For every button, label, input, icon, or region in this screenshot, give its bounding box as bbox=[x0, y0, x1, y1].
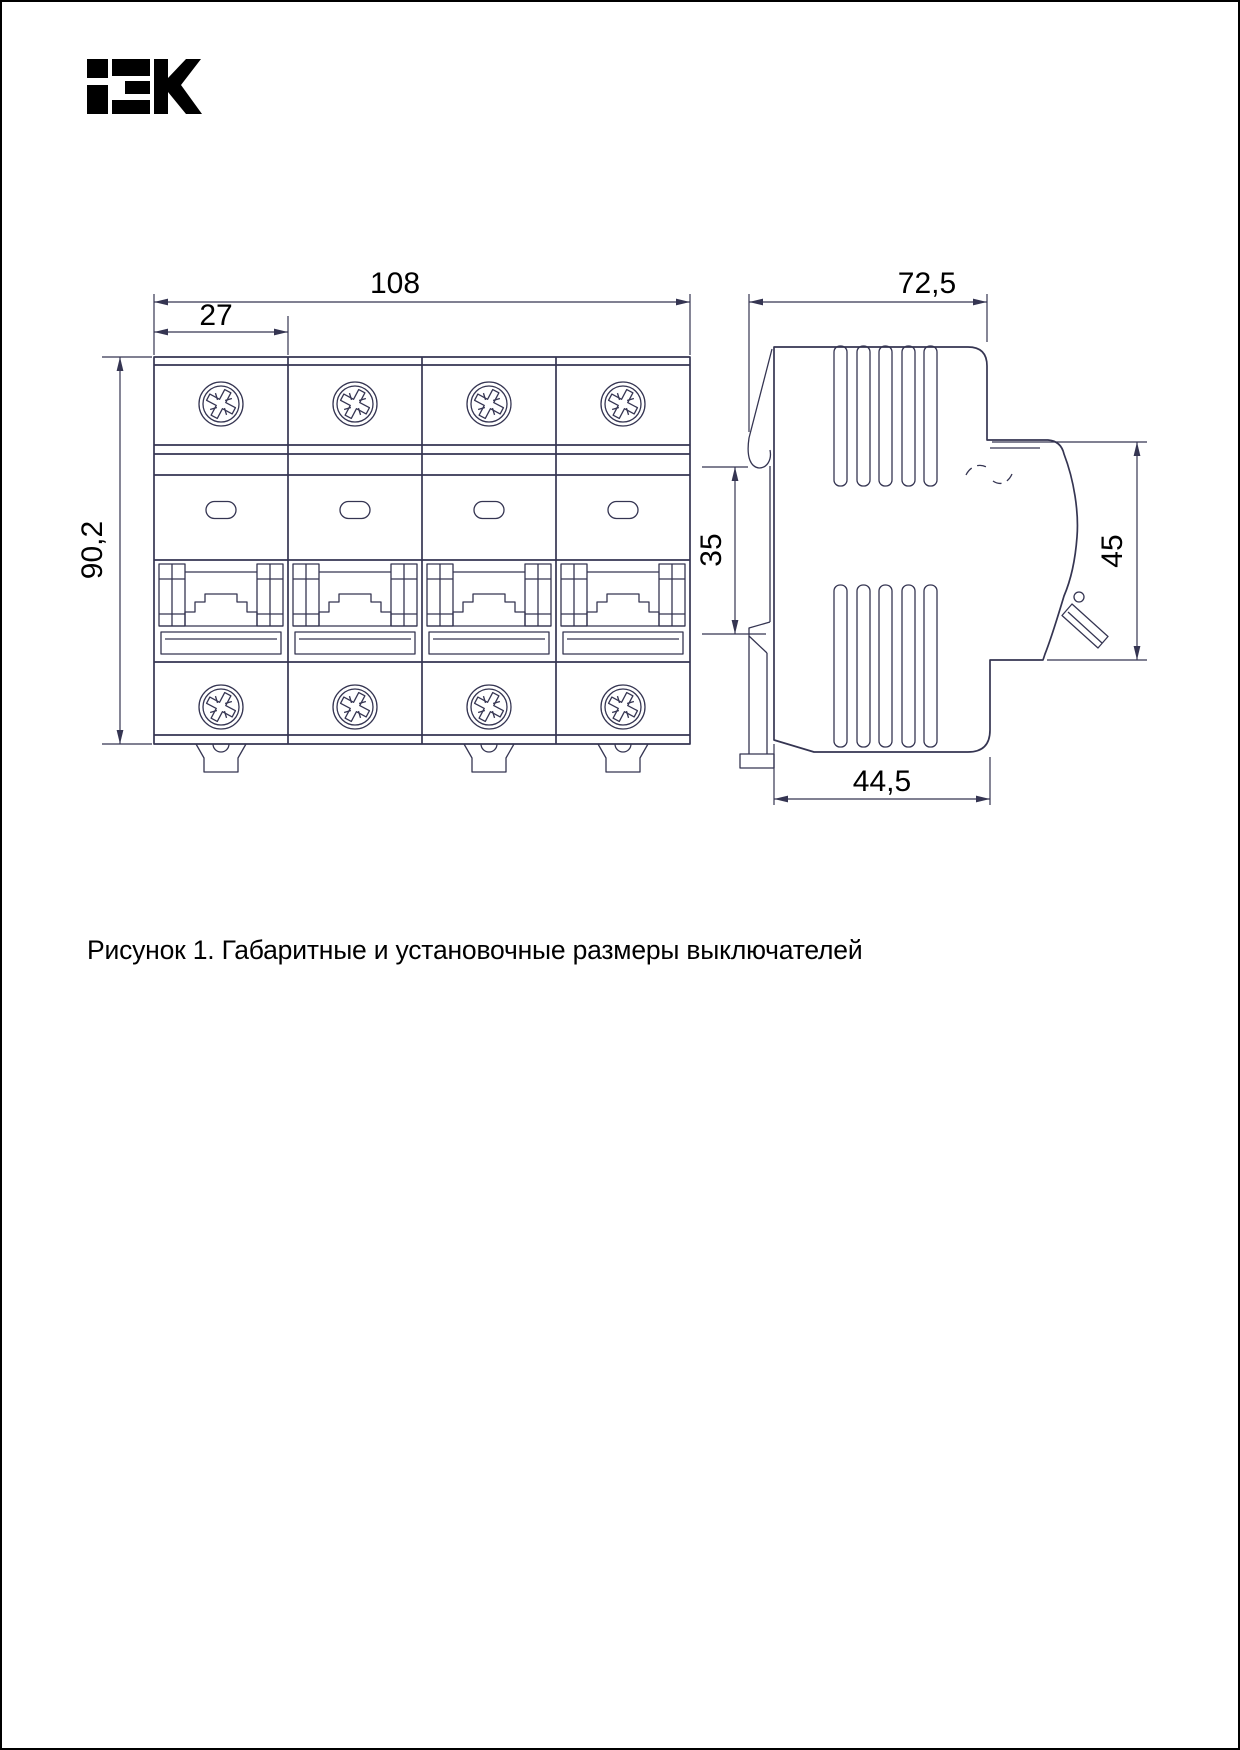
datasheet-page: 108 27 90,2 72,5 35 45 44,5 Рисунок 1. Г… bbox=[0, 0, 1240, 1750]
dim-base-depth: 44,5 bbox=[853, 765, 911, 798]
hidden-hole-dashed-lines bbox=[966, 465, 1012, 483]
ventilation-ribs bbox=[834, 346, 937, 747]
dim-front-width: 108 bbox=[370, 267, 420, 300]
dim-front-height: 90,2 bbox=[76, 521, 109, 579]
dim-front-face-height: 45 bbox=[1096, 534, 1129, 567]
dimension-drawing: 108 27 90,2 72,5 35 45 44,5 bbox=[2, 2, 1238, 1748]
din-rail-mount bbox=[740, 349, 774, 768]
side-view-body bbox=[774, 347, 1077, 752]
dim-rail-height: 35 bbox=[695, 533, 728, 566]
din-rail-clips bbox=[196, 744, 648, 772]
toggle-lever bbox=[1062, 592, 1108, 648]
front-view-drawing bbox=[154, 357, 690, 772]
dimension-annotations: 108 27 90,2 72,5 35 45 44,5 bbox=[76, 267, 1147, 805]
figure-caption: Рисунок 1. Габаритные и установочные раз… bbox=[87, 935, 862, 966]
side-view-drawing bbox=[740, 346, 1108, 768]
dim-side-depth: 72,5 bbox=[898, 267, 956, 300]
iek-logo bbox=[87, 59, 202, 114]
dim-module-width: 27 bbox=[199, 299, 232, 332]
